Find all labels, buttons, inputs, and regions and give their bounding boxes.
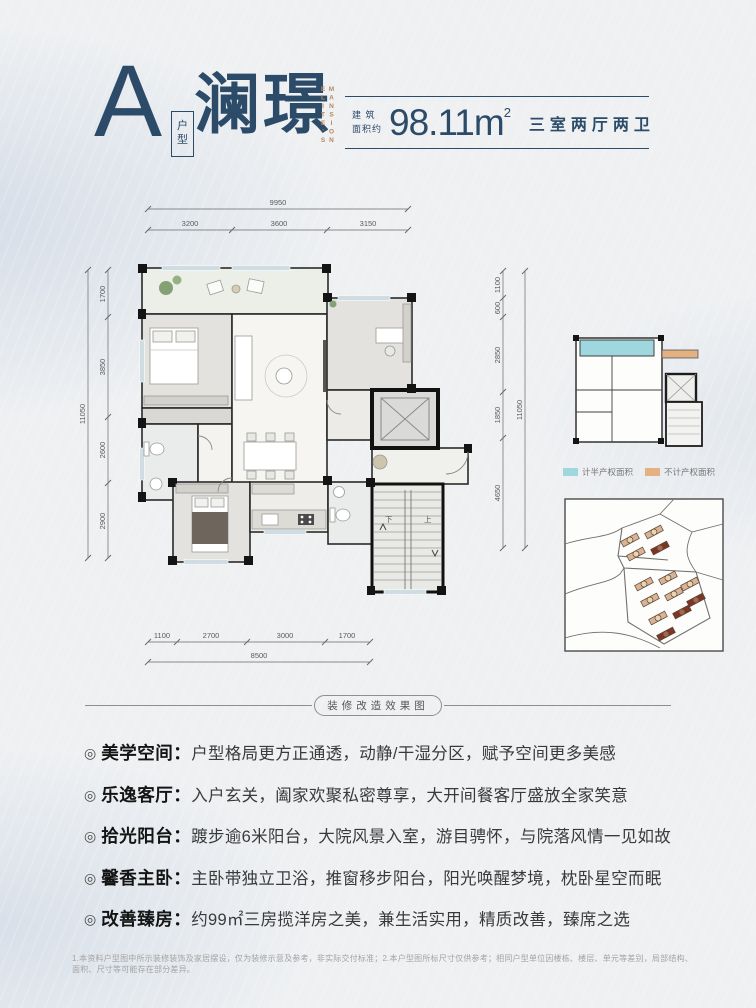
svg-text:1850: 1850 bbox=[493, 407, 502, 424]
keyplan-drawing bbox=[560, 326, 730, 462]
svg-text:3150: 3150 bbox=[360, 219, 377, 228]
bullet-icon: ◎ bbox=[84, 745, 96, 762]
unit-name-en-col2: MANSION bbox=[328, 86, 335, 146]
feature-title: 馨香主卧： bbox=[101, 865, 191, 890]
floorplan-poster: A 户 型 澜璟 ELITE'S MANSION 建 筑 面积约 98.11m2… bbox=[0, 0, 756, 1008]
legend-label: 计半产权面积 bbox=[582, 466, 633, 478]
svg-text:9950: 9950 bbox=[270, 198, 287, 207]
feature-title: 改善臻房： bbox=[101, 906, 191, 931]
feature-title: 拾光阳台： bbox=[101, 823, 191, 848]
keyplan-core bbox=[666, 374, 702, 446]
feature-item-master-bedroom: ◎ 馨香主卧： 主卧带独立卫浴，推窗移步阳台，阳光唤醒梦境，枕卧星空而眠 bbox=[84, 865, 694, 890]
feature-title: 美学空间： bbox=[101, 740, 191, 765]
feature-title: 乐逸客厅： bbox=[101, 782, 191, 807]
rooms-description: 三室两厅两卫 bbox=[529, 111, 655, 135]
feature-item-aesthetic-space: ◎ 美学空间： 户型格局更方正通透，动静/干湿分区，赋予空间更多美感 bbox=[84, 740, 694, 765]
feature-desc: 主卧带独立卫浴，推窗移步阳台，阳光唤醒梦境，枕卧星空而眠 bbox=[191, 865, 661, 889]
feature-desc: 约99㎡三房揽洋房之美，兼生活实用，精质改善，臻席之选 bbox=[191, 906, 630, 930]
divider-line bbox=[444, 705, 671, 706]
area-exponent: 2 bbox=[504, 105, 511, 120]
disclaimer-text: 1.本资料户型图中所示装修装饰及家居摆设，仅为装修示意及参考，非实际交付标准；2… bbox=[72, 953, 696, 975]
excluded-area-swatch bbox=[645, 468, 660, 476]
stair-up-label: 上 bbox=[424, 515, 432, 524]
unit-name-english: ELITE'S MANSION bbox=[319, 86, 334, 146]
siteplan-drawing bbox=[564, 498, 724, 652]
svg-text:2600: 2600 bbox=[98, 442, 107, 459]
area-label-line1: 建 筑 bbox=[352, 109, 382, 122]
keyplan-legend: 计半产权面积 不计产权面积 bbox=[563, 466, 715, 478]
feature-item-balcony: ◎ 拾光阳台： 踱步逾6米阳台，大院风景入室，游目骋怀，与院落风情一见如故 bbox=[84, 823, 694, 848]
svg-text:1700: 1700 bbox=[98, 286, 107, 303]
svg-text:3600: 3600 bbox=[271, 219, 288, 228]
keyplan-half-area bbox=[580, 340, 654, 356]
bullet-icon: ◎ bbox=[84, 828, 96, 845]
spec-block: 建 筑 面积约 98.11m2 三室两厅两卫 bbox=[345, 96, 649, 149]
svg-text:11050: 11050 bbox=[80, 404, 87, 424]
svg-text:1700: 1700 bbox=[339, 631, 356, 640]
legend-label: 不计产权面积 bbox=[664, 466, 715, 478]
svg-text:8500: 8500 bbox=[251, 651, 268, 660]
area-label: 建 筑 面积约 bbox=[352, 109, 382, 135]
svg-text:1100: 1100 bbox=[154, 631, 170, 640]
svg-text:4650: 4650 bbox=[493, 485, 502, 502]
feature-desc: 户型格局更方正通透，动静/干湿分区，赋予空间更多美感 bbox=[191, 740, 616, 764]
unit-letter: A bbox=[94, 50, 162, 152]
svg-text:2900: 2900 bbox=[98, 513, 107, 530]
bullet-icon: ◎ bbox=[84, 787, 96, 804]
legend-item-excluded-area: 不计产权面积 bbox=[645, 466, 715, 478]
unit-type-badge: 户 型 bbox=[171, 111, 194, 157]
divider-line bbox=[85, 705, 312, 706]
area-value: 98.11m2 bbox=[389, 102, 511, 144]
svg-text:3200: 3200 bbox=[182, 219, 199, 228]
feature-item-living-room: ◎ 乐逸客厅： 入户玄关，阖家欢聚私密尊享，大开间餐客厅盛放全家笑意 bbox=[84, 782, 694, 807]
keyplan-excluded-area bbox=[662, 350, 698, 358]
svg-text:3850: 3850 bbox=[98, 359, 107, 376]
stairwell: 下 上 bbox=[372, 484, 443, 592]
elevator bbox=[372, 390, 438, 448]
legend-item-half-area: 计半产权面积 bbox=[563, 466, 633, 478]
bullet-icon: ◎ bbox=[84, 911, 96, 928]
svg-text:3000: 3000 bbox=[277, 631, 294, 640]
bullet-icon: ◎ bbox=[84, 870, 96, 887]
svg-text:2700: 2700 bbox=[203, 631, 220, 640]
feature-desc: 踱步逾6米阳台，大院风景入室，游目骋怀，与院落风情一见如故 bbox=[191, 823, 671, 847]
unit-name-en-col1: ELITE'S bbox=[319, 86, 326, 146]
svg-text:11050: 11050 bbox=[515, 400, 524, 420]
stair-down-label: 下 bbox=[385, 515, 393, 524]
renovation-divider: 装修改造效果图 bbox=[85, 694, 671, 716]
renovation-label: 装修改造效果图 bbox=[314, 695, 442, 716]
feature-list: ◎ 美学空间： 户型格局更方正通透，动静/干湿分区，赋予空间更多美感 ◎ 乐逸客… bbox=[84, 740, 694, 931]
area-number: 98.11m bbox=[389, 102, 504, 143]
svg-text:600: 600 bbox=[493, 302, 502, 315]
area-label-line2: 面积约 bbox=[352, 123, 382, 136]
feature-desc: 入户玄关，阖家欢聚私密尊享，大开间餐客厅盛放全家笑意 bbox=[191, 782, 628, 806]
svg-text:2850: 2850 bbox=[493, 347, 502, 364]
half-area-swatch bbox=[563, 468, 578, 476]
unit-type-char: 型 bbox=[177, 134, 188, 148]
unit-name: 澜璟 bbox=[194, 62, 332, 148]
feature-item-upgrade-home: ◎ 改善臻房： 约99㎡三房揽洋房之美，兼生活实用，精质改善，臻席之选 bbox=[84, 906, 694, 931]
svg-text:1100: 1100 bbox=[493, 277, 502, 293]
floorplan-drawing: 下 上 bbox=[80, 190, 540, 690]
unit-type-char: 户 bbox=[177, 120, 188, 134]
